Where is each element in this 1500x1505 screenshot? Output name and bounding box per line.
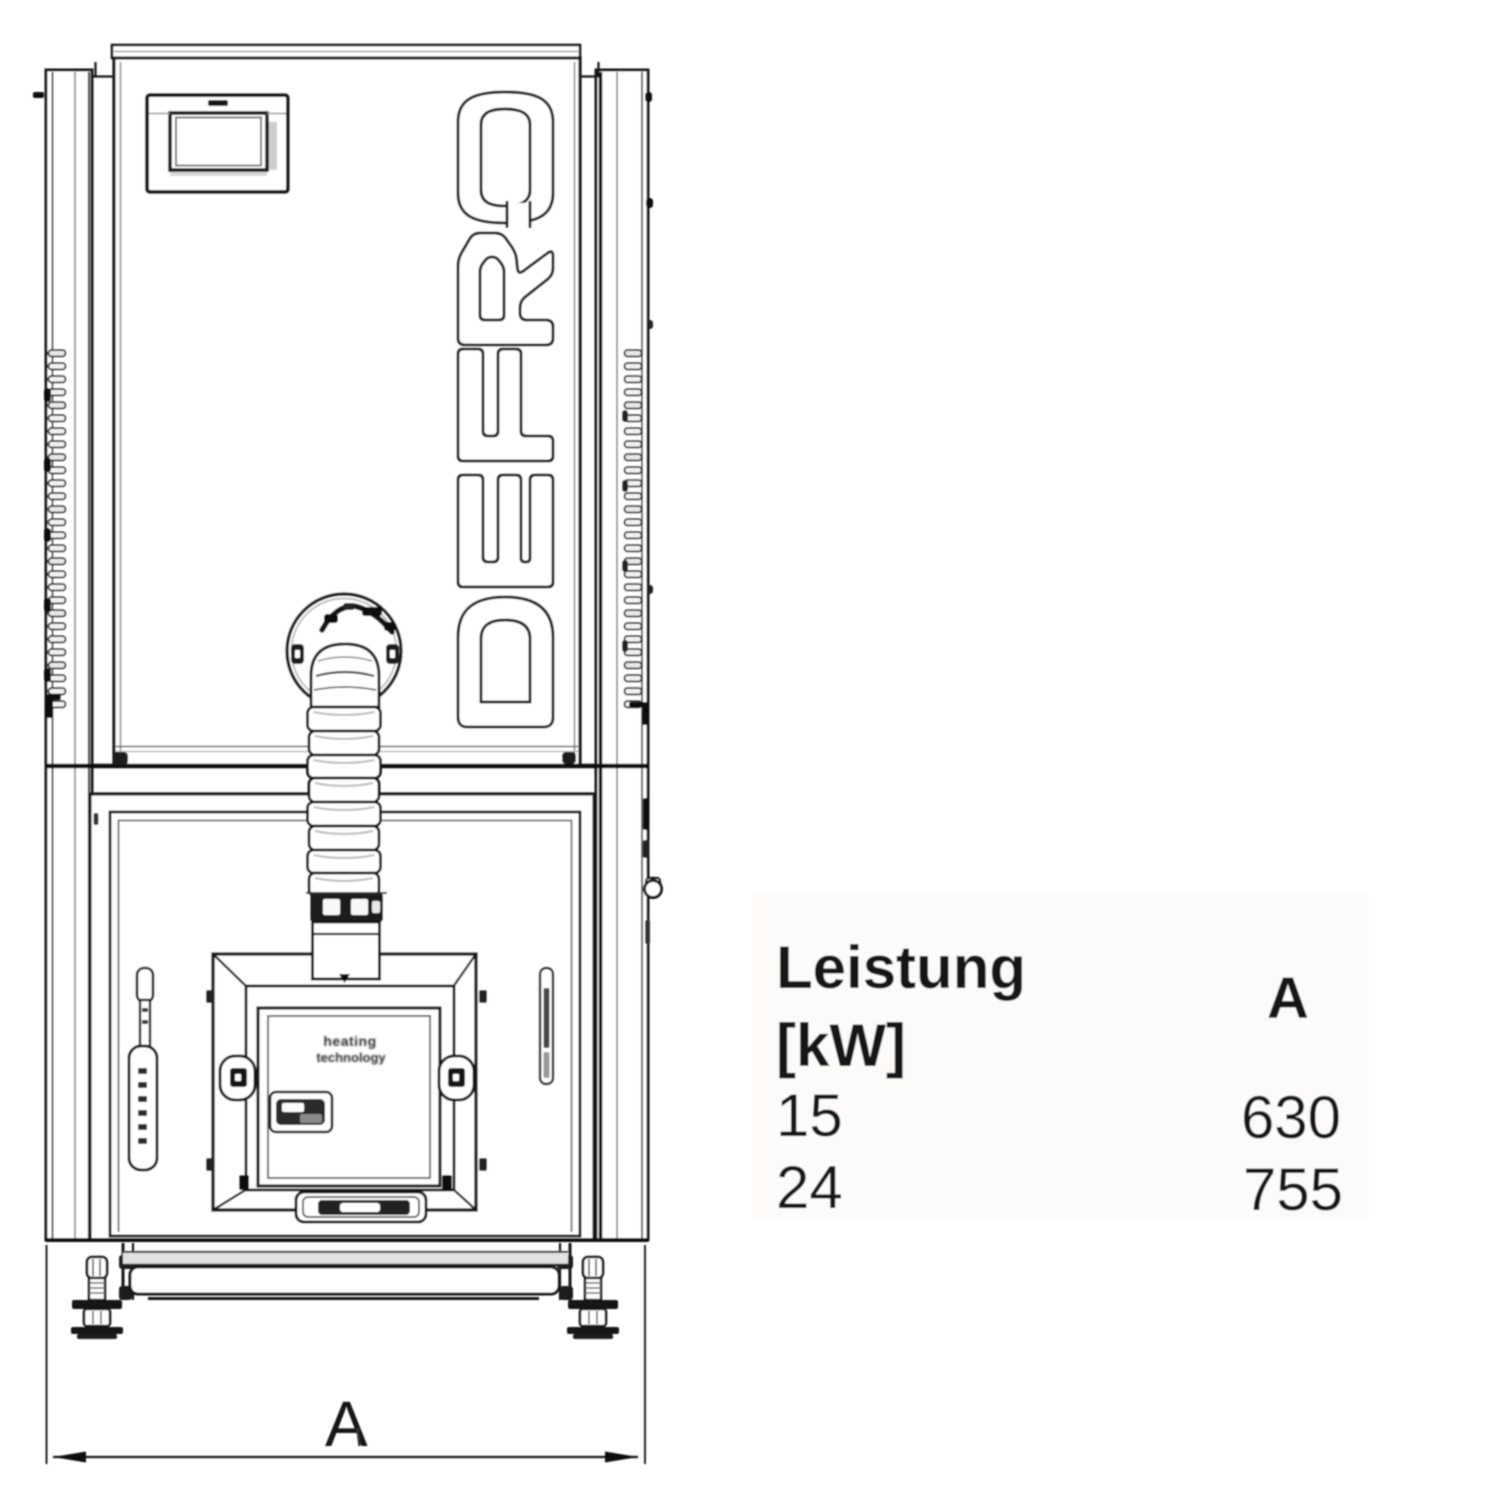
svg-text:heating: heating xyxy=(323,1033,376,1049)
svg-text:Leistung: Leistung xyxy=(776,934,1026,1001)
svg-text:technology: technology xyxy=(316,1050,386,1065)
svg-text:630: 630 xyxy=(1241,1084,1341,1151)
svg-text:755: 755 xyxy=(1243,1156,1343,1223)
svg-text:A: A xyxy=(1267,966,1309,1031)
svg-text:A: A xyxy=(325,1388,368,1460)
svg-text:[kW]: [kW] xyxy=(776,1012,906,1079)
svg-text:24: 24 xyxy=(776,1154,843,1221)
svg-text:15: 15 xyxy=(776,1082,843,1149)
